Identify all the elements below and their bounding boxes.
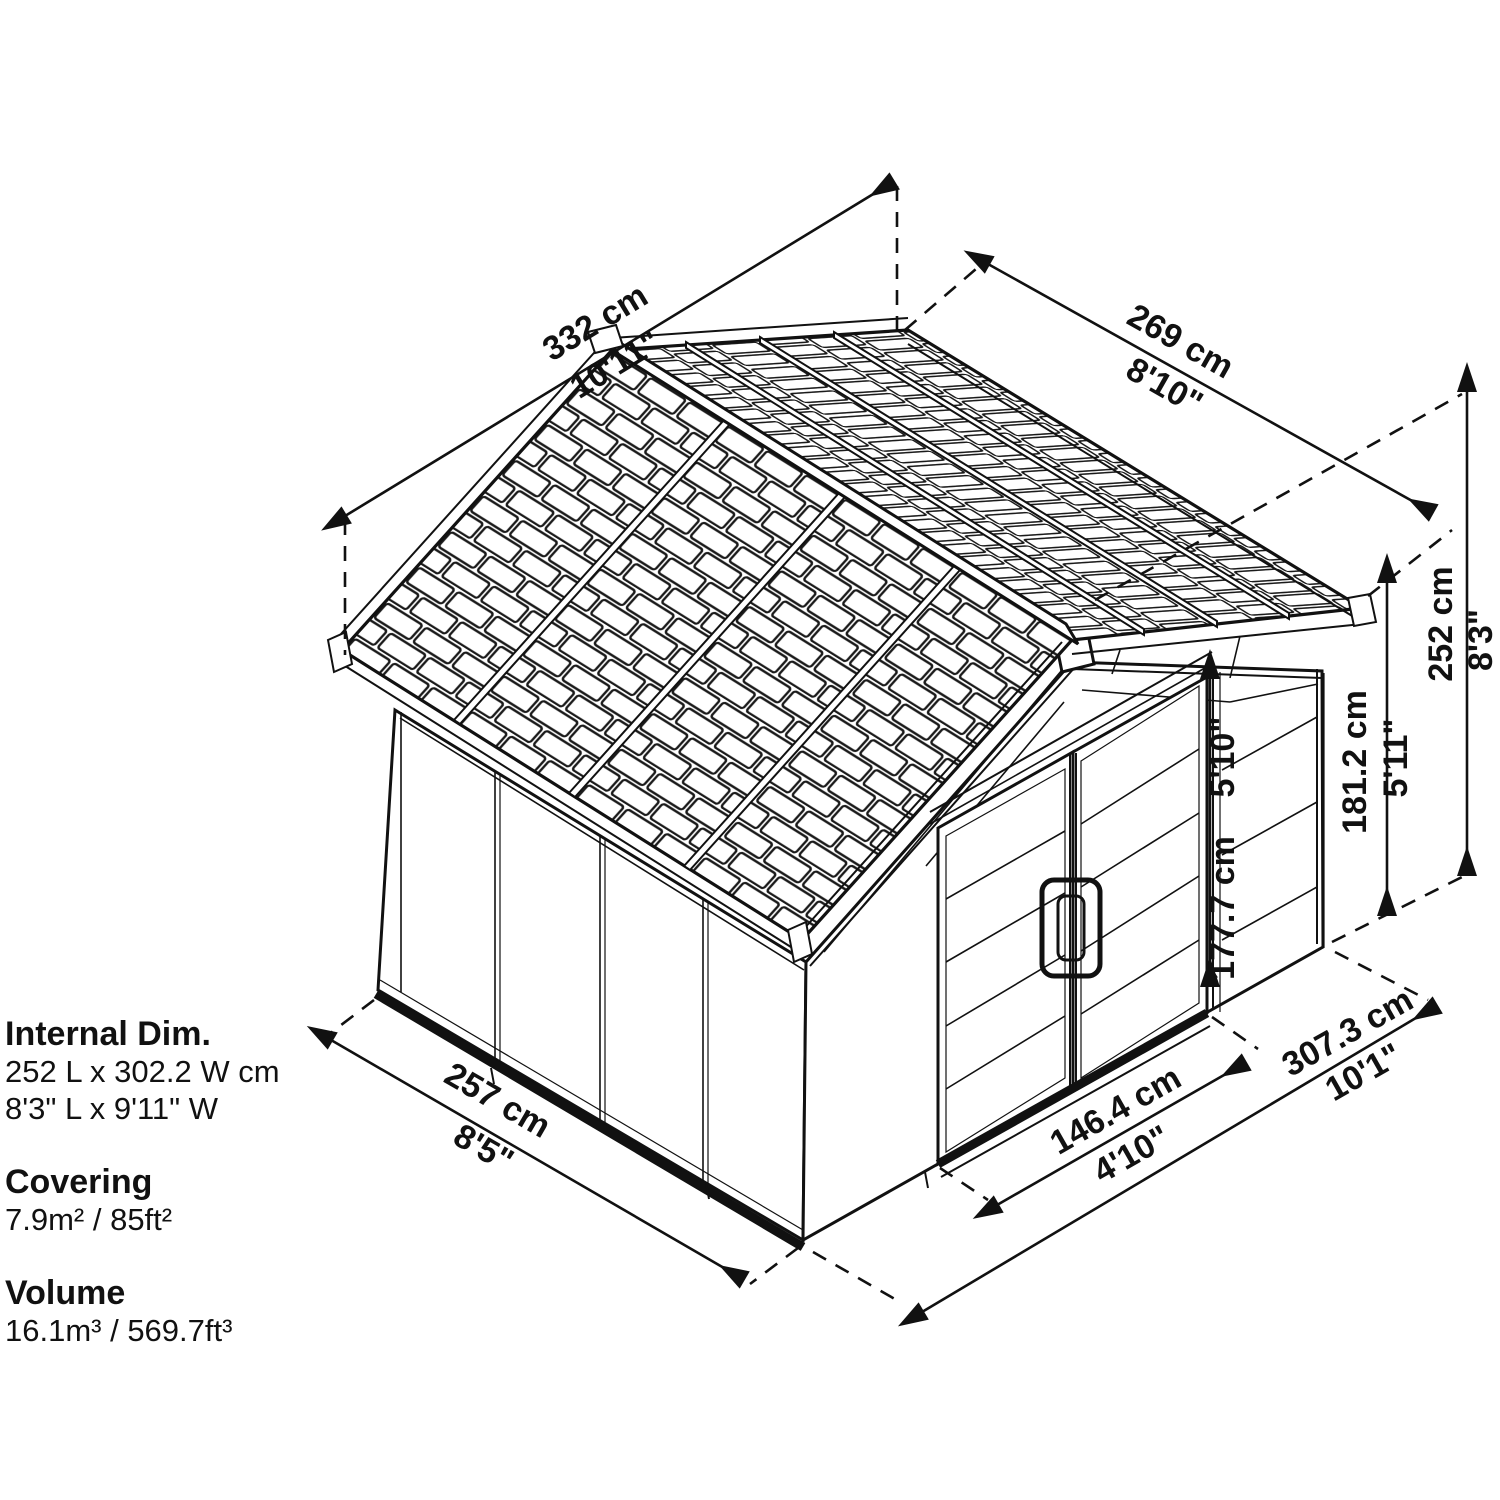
covering-title: Covering xyxy=(5,1163,152,1201)
label-total-height-imperial: 8'3" xyxy=(1462,609,1500,671)
label-door-height-metric: 177.7 cm xyxy=(1204,836,1242,980)
diagram-canvas: 332 cm 10'11" 269 cm 8'10" 252 cm 8'3" 1… xyxy=(0,0,1500,1500)
shed-dimension-diagram: 332 cm 10'11" 269 cm 8'10" 252 cm 8'3" 1… xyxy=(0,0,1500,1500)
label-door-height-imperial: 5'10" xyxy=(1204,717,1242,798)
volume-title: Volume xyxy=(5,1274,125,1312)
label-wall-height-metric: 181.2 cm xyxy=(1336,690,1374,834)
left-eave-endcap xyxy=(328,632,352,672)
double-doors xyxy=(938,677,1210,1177)
covering-value: 7.9m² / 85ft² xyxy=(5,1202,172,1237)
volume-value: 16.1m³ / 569.7ft³ xyxy=(5,1313,232,1348)
internal-dim-imperial: 8'3" L x 9'11" W xyxy=(5,1091,219,1126)
internal-dim-metric: 252 L x 302.2 W cm xyxy=(5,1054,280,1089)
spec-panel: Internal Dim. 252 L x 302.2 W cm 8'3" L … xyxy=(5,1015,280,1348)
right-eave-endcap xyxy=(1348,594,1376,626)
label-total-height-metric: 252 cm xyxy=(1422,566,1460,681)
internal-dim-title: Internal Dim. xyxy=(5,1015,211,1053)
label-wall-height-imperial: 5'11" xyxy=(1377,718,1415,797)
